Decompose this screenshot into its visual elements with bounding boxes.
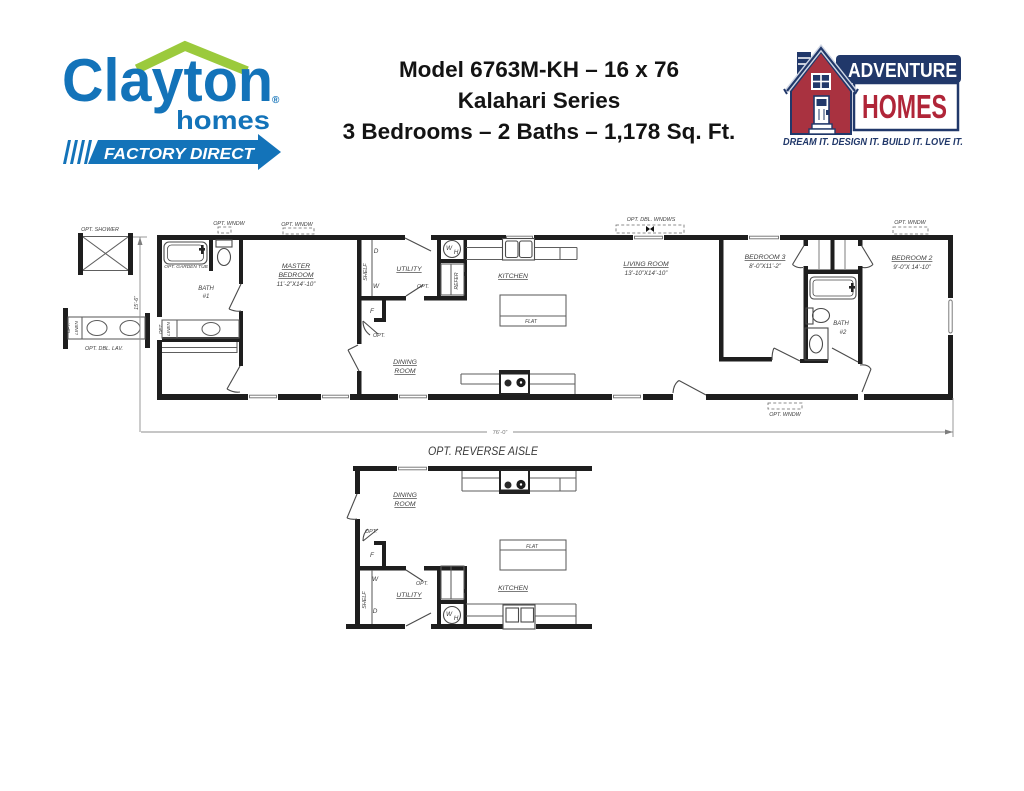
- svg-text:REFER: REFER: [454, 272, 460, 289]
- svg-text:3 Bedrooms – 2 Baths – 1,178 S: 3 Bedrooms – 2 Baths – 1,178 Sq. Ft.: [343, 119, 736, 144]
- svg-text:W: W: [446, 245, 453, 252]
- svg-text:FLAT: FLAT: [526, 544, 539, 550]
- svg-text:ADVENTURE: ADVENTURE: [848, 60, 957, 82]
- svg-text:ROOM: ROOM: [394, 368, 415, 375]
- svg-text:8’-0”X11’-2”: 8’-0”X11’-2”: [749, 263, 782, 270]
- svg-text:ROOM: ROOM: [394, 501, 415, 508]
- svg-text:D: D: [374, 248, 379, 255]
- svg-text:OPT. REVERSE AISLE: OPT. REVERSE AISLE: [428, 444, 539, 458]
- svg-text:OPT. SHOWER: OPT. SHOWER: [81, 227, 119, 233]
- svg-text:OPT. GARDEN TUB: OPT. GARDEN TUB: [164, 264, 208, 270]
- svg-text:UTILITY: UTILITY: [396, 592, 422, 599]
- svg-text:BEDROOM: BEDROOM: [278, 272, 313, 279]
- svg-text:#2: #2: [840, 330, 847, 336]
- svg-text:OPT. WNDW: OPT. WNDW: [769, 412, 801, 418]
- svg-text:BEDROOM 3: BEDROOM 3: [745, 254, 786, 261]
- svg-text:homes: homes: [176, 105, 270, 135]
- svg-text:13’-10”X14’-10”: 13’-10”X14’-10”: [625, 270, 669, 277]
- svg-text:OPT.: OPT.: [66, 323, 71, 334]
- svg-text:SHELF: SHELF: [362, 591, 368, 609]
- svg-text:H: H: [454, 249, 459, 256]
- svg-text:SHELF: SHELF: [363, 263, 369, 281]
- svg-text:Clayton: Clayton: [62, 47, 273, 114]
- svg-text:OPT. DBL. WNDWS: OPT. DBL. WNDWS: [627, 217, 676, 223]
- svg-text:LINEN: LINEN: [166, 322, 171, 336]
- svg-text:KITCHEN: KITCHEN: [498, 585, 528, 592]
- svg-text:15’-6”: 15’-6”: [134, 296, 140, 310]
- svg-text:F: F: [370, 308, 375, 315]
- svg-text:Kalahari Series: Kalahari Series: [458, 88, 621, 113]
- svg-text:OPT. DBL. LAV.: OPT. DBL. LAV.: [85, 346, 123, 352]
- svg-text:OPT.: OPT.: [158, 324, 163, 335]
- svg-text:FACTORY DIRECT: FACTORY DIRECT: [104, 146, 255, 163]
- svg-text:FLAT: FLAT: [525, 319, 538, 325]
- svg-text:LINEN: LINEN: [74, 321, 79, 335]
- svg-text:OPT.: OPT.: [373, 333, 385, 339]
- svg-text:76’-0”: 76’-0”: [493, 430, 508, 436]
- svg-text:KITCHEN: KITCHEN: [498, 273, 528, 280]
- svg-text:®: ®: [272, 95, 280, 106]
- svg-text:DINING: DINING: [393, 492, 417, 499]
- svg-text:HOMES: HOMES: [862, 88, 947, 125]
- svg-text:W: W: [446, 611, 453, 618]
- svg-text:OPT. WNDW: OPT. WNDW: [213, 221, 245, 227]
- svg-text:BEDROOM 2: BEDROOM 2: [892, 255, 933, 262]
- svg-text:D: D: [373, 608, 378, 615]
- svg-text:9’-0”X 14’-10”: 9’-0”X 14’-10”: [893, 264, 931, 271]
- svg-text:DINING: DINING: [393, 359, 417, 366]
- svg-text:OPT.: OPT.: [365, 529, 377, 535]
- svg-text:DREAM IT. DESIGN IT. BUILD I: DREAM IT. DESIGN IT. BUILD IT. LOVE IT.: [783, 137, 963, 148]
- svg-text:11’-2”X14’-10”: 11’-2”X14’-10”: [277, 281, 317, 288]
- svg-text:BATH: BATH: [833, 321, 849, 327]
- svg-text:OPT. WNDW: OPT. WNDW: [281, 222, 313, 228]
- svg-text:MASTER: MASTER: [282, 263, 310, 270]
- svg-text:OPT.: OPT.: [417, 284, 429, 290]
- svg-text:#1: #1: [203, 294, 210, 300]
- svg-text:BATH: BATH: [198, 286, 214, 292]
- svg-text:W: W: [373, 283, 380, 290]
- svg-text:LIVING ROOM: LIVING ROOM: [623, 261, 669, 268]
- svg-text:F: F: [370, 552, 375, 559]
- svg-text:OPT.: OPT.: [416, 581, 428, 587]
- svg-text:UTILITY: UTILITY: [396, 266, 422, 273]
- svg-text:Model 6763M-KH – 16 x 76: Model 6763M-KH – 16 x 76: [399, 57, 679, 82]
- svg-text:W: W: [372, 576, 379, 583]
- svg-text:H: H: [454, 615, 459, 622]
- svg-text:OPT. WNDW: OPT. WNDW: [894, 220, 926, 226]
